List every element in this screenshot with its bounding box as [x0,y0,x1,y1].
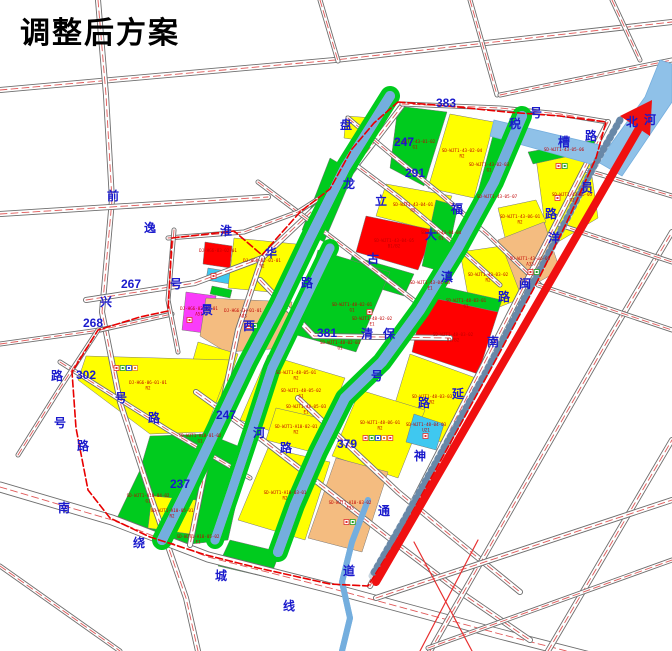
road-name-label: 南 [487,334,499,349]
parcel-code-label: SD-WJT1-43-02-04 [442,148,483,153]
road-name-label: 号 [54,415,66,430]
road-name-label: 税 [509,116,521,131]
road-name-label: 237 [170,477,190,491]
road-name-label: 线 [283,598,295,613]
road-name-label: 路 [585,128,598,143]
road-name-label: 路 [77,438,90,453]
parcel-zone-label: R2 [293,430,299,435]
amenity-icon-glyph [134,367,136,369]
parcel-code-label: SD-WJT1-43-06-01 [500,214,541,219]
parcel-code-label: SD-WJT1-48-02-02 [352,316,393,321]
road-name-label: 洋 [548,230,560,245]
parcel-code-label: SD-WJT1-43-04-05 [374,238,415,243]
amenity-icon-glyph [383,437,385,439]
parcel-code-label: SD-WJT1-48-03-01 [446,298,487,303]
amenity-icon-glyph [558,165,560,167]
parcel-zone-label: A33 [239,314,247,319]
road-name-label: 383 [436,96,456,110]
parcel-zone-label: G1 [337,346,343,351]
parcel-zone-label: R2 [377,426,383,431]
road-name-label: 路 [301,275,314,290]
road-name-label: 大 [425,227,437,242]
parcel-zone-label: G1 [463,304,469,309]
amenity-icon-glyph [365,437,367,439]
road-name-label: 神 [414,448,426,463]
road-name-label: 247 [216,408,236,422]
road-name-label: 通 [378,503,390,518]
road-name-label: 路 [280,440,293,455]
parcel-zone-label: E1 [195,540,201,545]
road-name-label: 立 [375,193,387,208]
amenity-icon-glyph [369,311,371,313]
parcel-zone-label: R2 [429,400,435,405]
road-name-label: 381 [317,326,337,340]
parcel-code-label: SD-WJT1-43-02-03 [469,162,510,167]
amenity-icon-glyph [189,319,191,321]
parcel-zone-label: R2 [293,376,299,381]
parcel-code-label: SD-WJT1-48-04-03 [406,422,447,427]
road-name-label: 河 [252,425,265,440]
parcel-code-label: SD-WJT1-43-03-02 [468,272,509,277]
road-name-label: 龙 [343,176,355,191]
road-name-label: 路 [418,395,431,410]
parcel-zone-label: R2 [410,208,416,213]
road-name-label: 北 [626,114,638,129]
road-centerline [470,0,497,95]
road-name-label: 号 [170,276,182,291]
parcel-zone-label: G1 [438,236,444,241]
road-name-label: 路 [51,368,64,383]
road-name-label: 291 [405,166,425,180]
road-name-label: 保 [382,326,396,341]
road-name-label: 清 [361,326,373,341]
parcel-zone-label: U21 [422,428,430,433]
amenity-icon-glyph [122,367,124,369]
parcel-code-label: SD-WJT1-48-02-03 [320,340,361,345]
amenity-icon-glyph [213,275,215,277]
road-name-label: 号 [530,105,542,120]
parcel-code-label: SD-WJT1-A10-03-01 [264,490,307,495]
road-name-label: 福 [450,201,463,216]
road-name-label: 路 [545,206,558,221]
parcel-code-label: SD-WJT1-43-06-02 [510,256,551,261]
parcel-zone-label: R2 [259,264,265,269]
parcel-zone-label: R2 [169,514,175,519]
parcel-code-label: SD-WJT1-A10-01-02 [179,433,222,438]
road-name-label: 南 [58,500,70,515]
road-name-label: 景 [201,303,213,317]
parcel-zone-label: A33 [526,262,534,267]
parcel-code-label: SD-WJT1-48-05-02 [281,388,322,393]
parcel-code-label: SD-WJT1-48-02-01 [332,302,373,307]
parcel-code-label: DJ-HG6-CH-01-01 [224,308,262,313]
road-name-label: 盘 [340,117,352,132]
parcel-code-label: SD-WJT1-A10-02-01 [275,424,318,429]
parcel-code-label: DJ-HG6-06-01-01 [129,380,167,385]
parcel-zone-label: G1 [197,439,203,444]
road-name-label: 267 [121,277,141,291]
amenity-icon-glyph [352,521,354,523]
parcel-code-label: SD-WJT1-48-05-01 [276,370,317,375]
parcel-zone-label: R2 [485,278,491,283]
road-name-label: 西 [243,319,255,333]
amenity-icon-glyph [389,437,391,439]
parcel-zone-label: A33 [346,506,354,511]
amenity-icon-glyph [425,435,427,437]
road-name-label: 员 [581,181,593,195]
parcel-code-label: SD-WJT1-A10-05-02 [177,534,220,539]
road-name-label: 华 [265,245,277,260]
amenity-icon-glyph [116,367,118,369]
amenity-icon-glyph [377,437,379,439]
parcel-code-label: SD-WJT1-A10-04-02 [127,493,170,498]
parcel-zone-label: R2 [282,496,288,501]
parcel-code-label: SD-WJT1-48-03-02 [433,332,474,337]
road-name-label: 延 [451,386,465,401]
parcel-zone-label: E1 [427,286,433,291]
road-name-label: 绕 [133,535,145,550]
road-name-label: 道 [343,563,355,578]
parcel-zone-label: R2 [459,154,465,159]
parcel-zone-label: R2 [569,198,575,203]
road-name-label: 古 [367,251,379,266]
road-name-label: 268 [83,316,103,330]
amenity-icon-glyph [564,165,566,167]
amenity-icon-glyph [346,521,348,523]
parcel-code-label: DJ-HG6-03-02-01 [199,248,237,253]
map-canvas: SD-WJT1-43-01-02G1SD-WJT1-43-02-04R2SD-W… [0,0,672,651]
parcel-code-label: SD-WJT1-48-05-03 [286,404,327,409]
parcel-zone-label: E1 [303,410,309,415]
road-name-label: 前 [107,188,119,203]
road-name-label: 兴 [100,294,112,309]
road-name-label: 号 [371,368,383,383]
road-name-label: 闽 [519,276,531,291]
road-centerline [500,60,672,95]
parcel-code-label: SD-WJT1-A10-05-01 [151,508,194,513]
parcel-zone-label: R2 [145,386,151,391]
parcel-zone-label: G1 [145,499,151,504]
road-name-label: 滇 [441,269,453,284]
road-name-label: 247 [394,135,414,149]
parcel-zone-label: B1/B2 [447,338,460,343]
road-name-label: 城 [215,568,227,583]
road-name-label: 逸 [144,220,156,235]
parcel-zone-label: G1 [349,308,355,313]
road-name-label: 号 [115,390,127,405]
parcel-zone-label: G1 [298,394,304,399]
road-name-label: 路 [498,289,511,304]
road-surface [320,0,338,61]
road-name-label: 槽 [558,134,570,149]
parcel-zone-label: G1 [486,168,492,173]
parcel-zone-label: R2 [517,220,523,225]
road-name-label: 302 [76,368,96,382]
amenity-icon-glyph [536,271,538,273]
parcel-code-label: SD-WJT1-43-05-07 [477,194,518,199]
road-name-label: 淮 [220,223,232,238]
parcel-R [203,242,232,268]
road-centerline [376,500,672,598]
road-name-label: 路 [148,410,161,425]
parcel-code-label: SD-WJT1-43-04-01 [393,202,434,207]
parcel-zone-label: E1 [369,322,375,327]
parcel-zone-label: B1/B2 [388,244,401,249]
page-title: 调整后方案 [20,8,180,52]
parcel-code-label: SD-WJT1-A10-03-02 [329,500,372,505]
parcel-code-label: SD-WJT1-48-06-01 [360,420,401,425]
amenity-icon-glyph [371,437,373,439]
road-name-label: 河 [643,112,656,127]
amenity-icon-glyph [530,271,532,273]
amenity-icon-glyph [557,197,559,199]
planning-map: 调整后方案 SD-WJT1-43-01-02G1SD-WJT1-43-02-04… [0,0,672,651]
road-name-label: 379 [337,437,357,451]
amenity-icon-glyph [128,367,130,369]
